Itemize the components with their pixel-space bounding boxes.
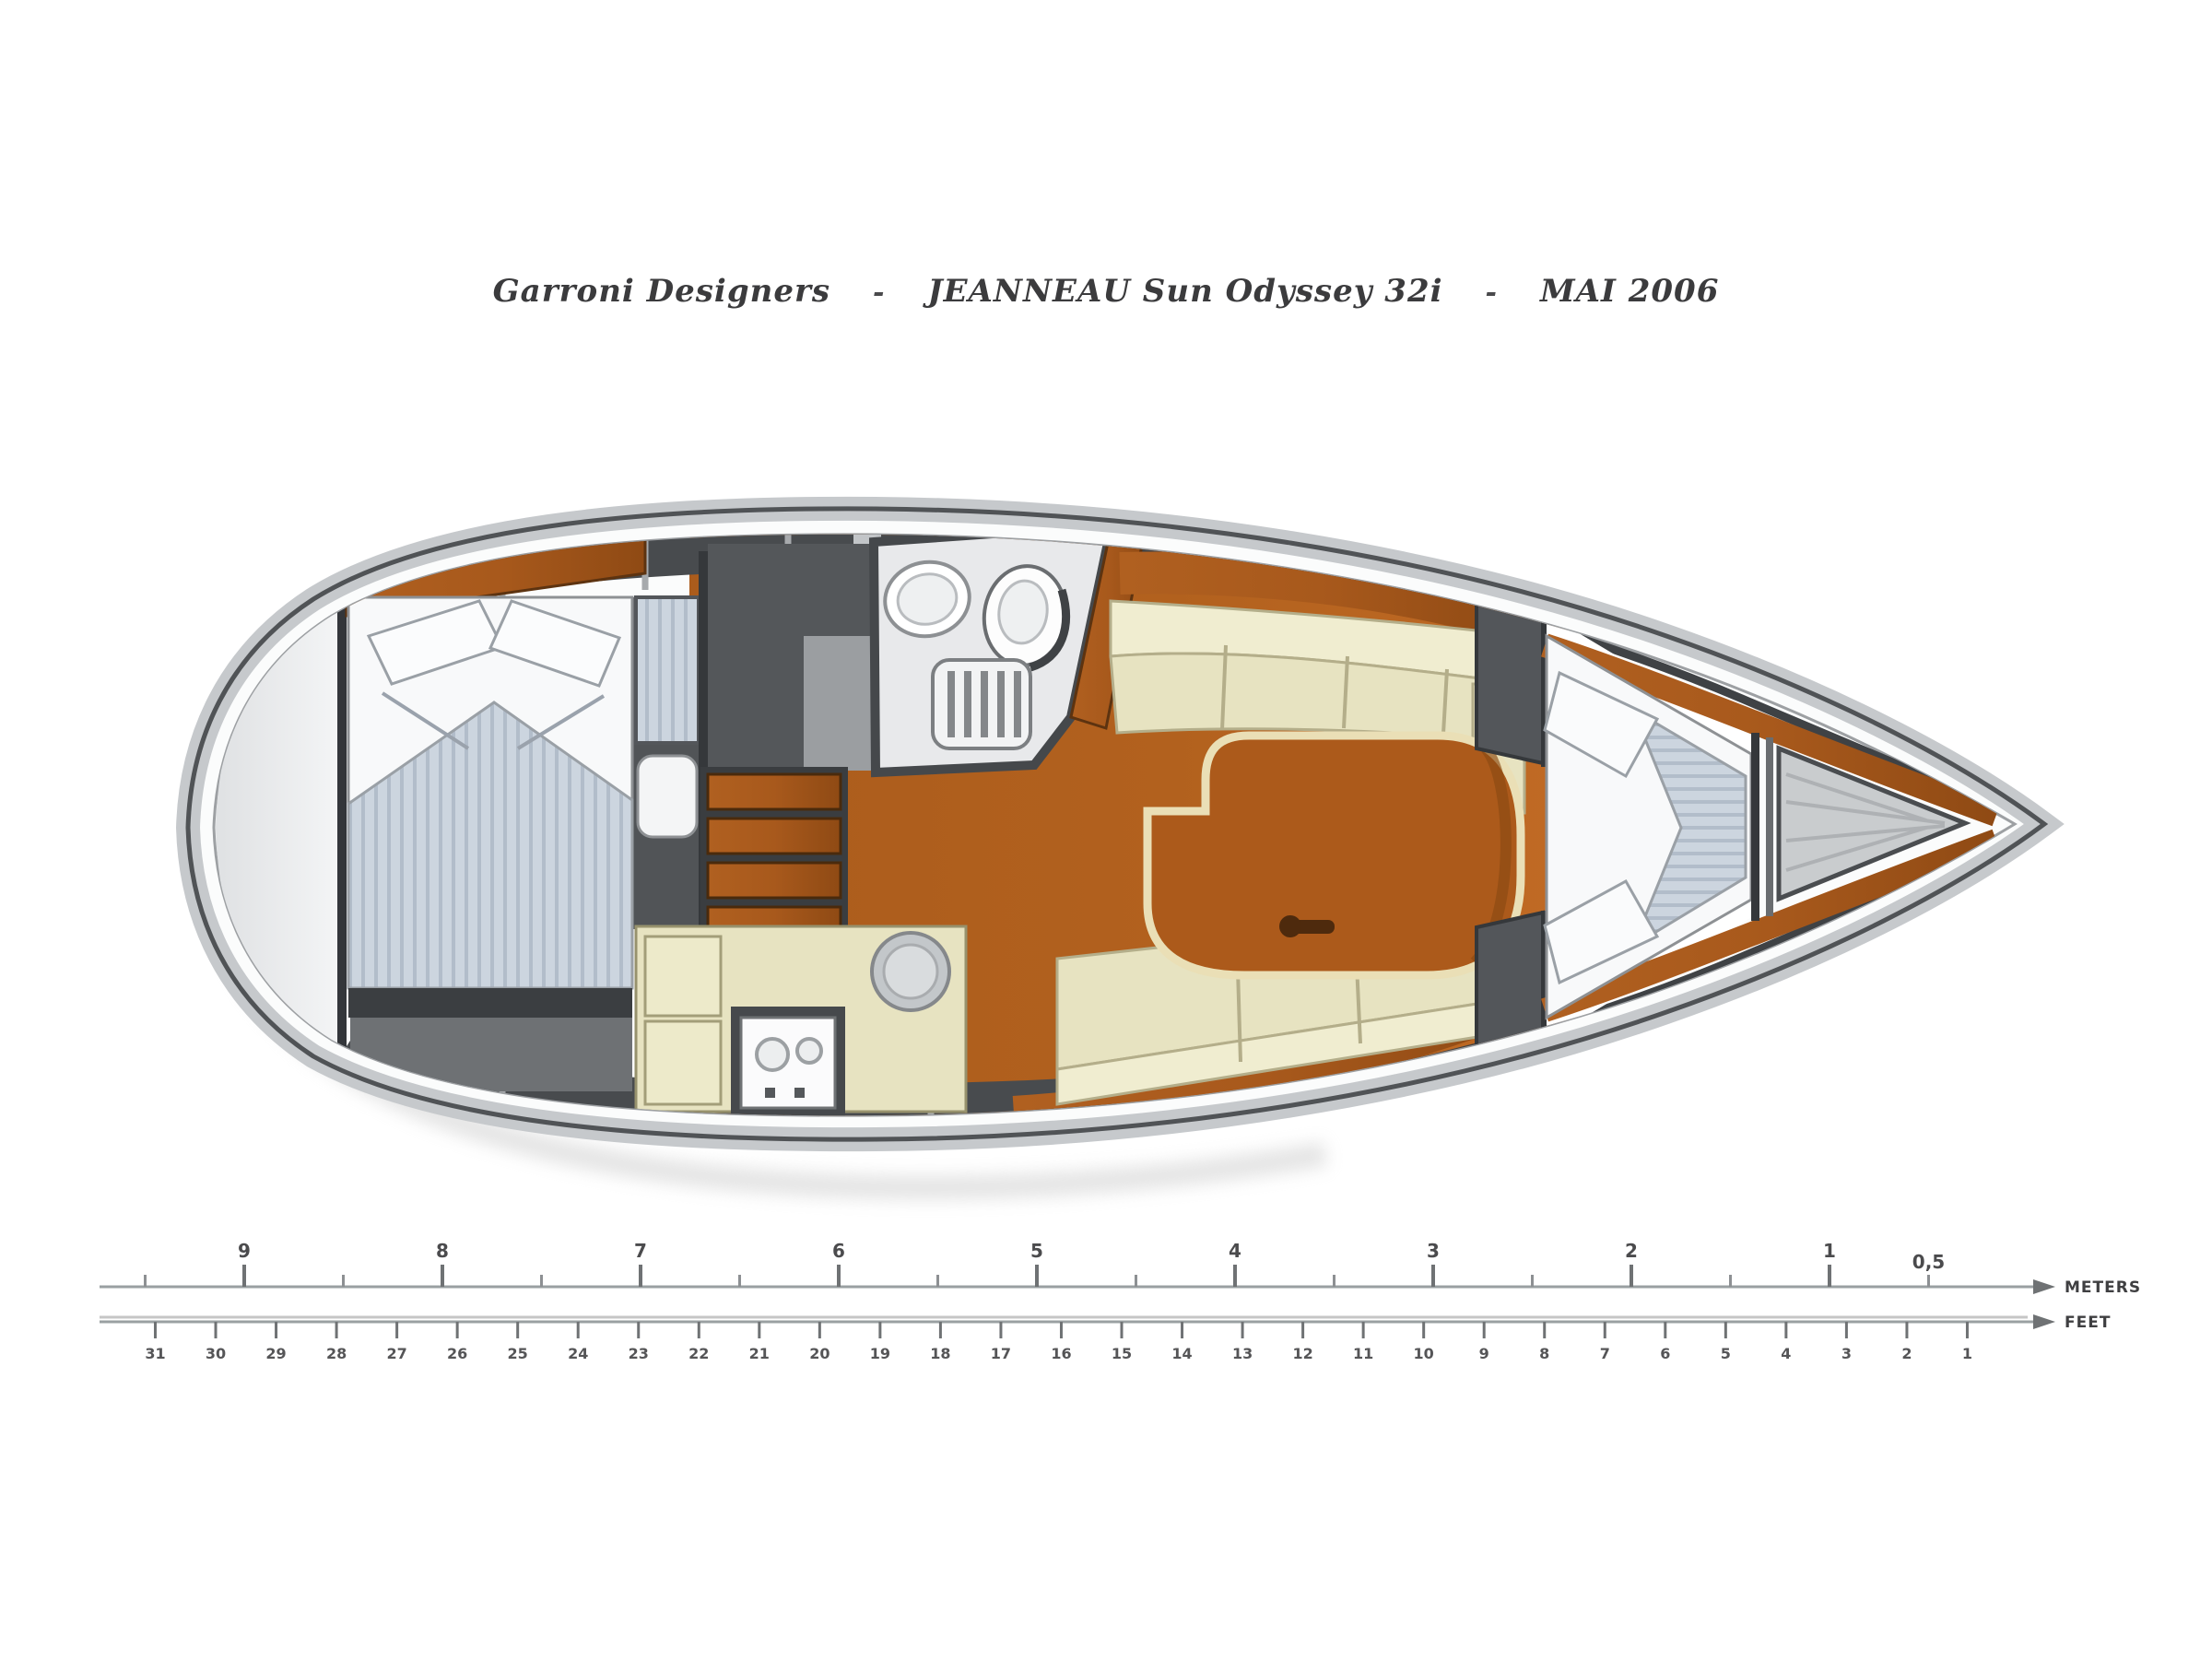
saloon-table	[1147, 736, 1521, 975]
feet-tick-label: 17	[991, 1345, 1011, 1362]
feet-tick-label: 22	[688, 1345, 709, 1362]
feet-tick-label: 27	[386, 1345, 406, 1362]
feet-tick-label: 9	[1479, 1345, 1489, 1362]
meters-tick-label: 1	[1823, 1240, 1836, 1262]
shower-grate-icon	[933, 660, 1030, 748]
feet-tick-label: 20	[809, 1345, 829, 1362]
feet-tick-label: 23	[629, 1345, 649, 1362]
feet-tick-label: 15	[1112, 1345, 1132, 1362]
meters-tick-label: 4	[1229, 1240, 1241, 1262]
galley-locker-door	[645, 937, 721, 1016]
feet-tick-label: 8	[1539, 1345, 1549, 1362]
engine-box-panel	[804, 636, 874, 771]
transom-bulkhead	[337, 548, 347, 1110]
feet-tick-label: 5	[1721, 1345, 1731, 1362]
feet-tick-label: 13	[1232, 1345, 1253, 1362]
feet-tick-label: 28	[326, 1345, 347, 1362]
feet-tick-label: 3	[1841, 1345, 1852, 1362]
feet-tick-label: 30	[206, 1345, 226, 1362]
feet-tick-label: 2	[1901, 1345, 1912, 1362]
stove-icon	[741, 1018, 835, 1108]
feet-tick-label: 6	[1660, 1345, 1670, 1362]
feet-tick-label: 16	[1051, 1345, 1071, 1362]
feet-unit-label: FEET	[2065, 1313, 2111, 1332]
feet-tick-label: 11	[1353, 1345, 1373, 1362]
meters-tick-label: 5	[1030, 1240, 1043, 1262]
meters-unit-label: METERS	[2065, 1278, 2141, 1297]
aft-cabin-wardrobe	[636, 597, 699, 743]
meters-arrow	[2033, 1279, 2055, 1294]
meters-tick-label: 6	[832, 1240, 845, 1262]
feet-tick-label: 24	[568, 1345, 588, 1362]
scale-ruler: METERS9876543210,5FEET313029282726252423…	[100, 1240, 2141, 1362]
boat-floorplan-drawing: METERS9876543210,5FEET313029282726252423…	[0, 0, 2212, 1661]
feet-tick-label: 25	[508, 1345, 528, 1362]
feet-tick-label: 31	[145, 1345, 165, 1362]
meters-tick-label: 8	[436, 1240, 449, 1262]
feet-tick-label: 10	[1414, 1345, 1434, 1362]
aft-cabin-seat	[638, 756, 697, 837]
galley-locker-door	[645, 1021, 721, 1104]
feet-tick-label: 7	[1600, 1345, 1610, 1362]
feet-tick-label: 4	[1781, 1345, 1791, 1362]
aft-berth-foot-board	[348, 988, 632, 1018]
meters-tick-label: 2	[1625, 1240, 1638, 1262]
feet-tick-label: 26	[447, 1345, 467, 1362]
feet-tick-label: 29	[265, 1345, 286, 1362]
boat-layout-page: Garroni Designers - JEANNEAU Sun Odyssey…	[0, 0, 2212, 1661]
feet-tick-label: 1	[1962, 1345, 1972, 1362]
meters-tick-label: 3	[1427, 1240, 1440, 1262]
galley-sink-icon	[872, 933, 949, 1010]
meters-half-label: 0,5	[1912, 1251, 1945, 1273]
feet-tick-label: 18	[930, 1345, 950, 1362]
meters-tick-label: 7	[634, 1240, 647, 1262]
feet-tick-label: 21	[749, 1345, 770, 1362]
feet-arrow	[2033, 1314, 2055, 1329]
galley	[636, 926, 966, 1119]
feet-tick-label: 12	[1292, 1345, 1312, 1362]
meters-tick-label: 9	[238, 1240, 251, 1262]
feet-tick-label: 14	[1171, 1345, 1192, 1362]
feet-tick-label: 19	[870, 1345, 890, 1362]
